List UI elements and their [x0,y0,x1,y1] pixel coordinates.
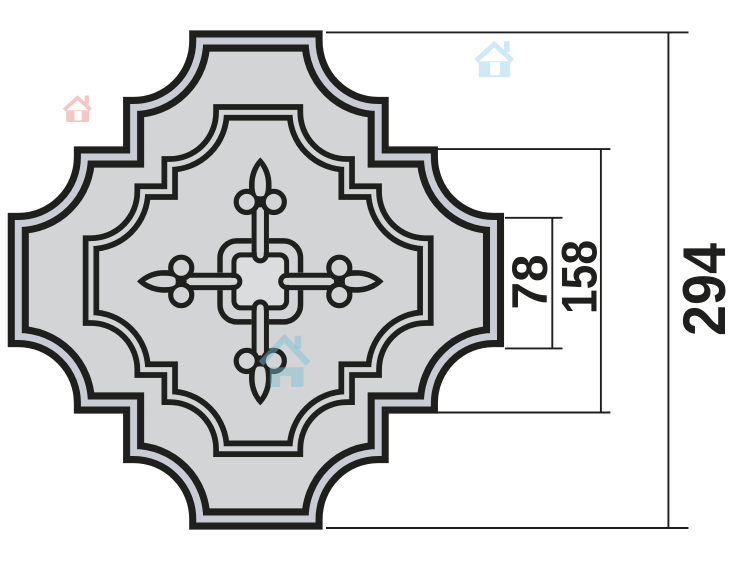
svg-text:294: 294 [671,242,730,336]
svg-text:158: 158 [552,240,608,314]
svg-text:78: 78 [502,255,558,310]
